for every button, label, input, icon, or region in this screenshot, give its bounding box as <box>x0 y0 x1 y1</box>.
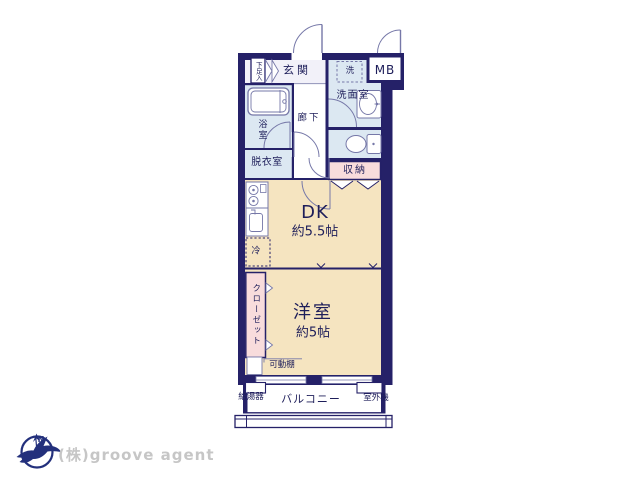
dressing-room-label: 脱衣室 <box>251 158 283 168</box>
meter-box-label: MB <box>375 64 396 76</box>
meter-box-door-arc <box>378 30 401 53</box>
closet-label: クローゼット <box>251 284 260 347</box>
entrance-label: 玄関 <box>283 64 311 75</box>
western-room-label: 洋室 <box>293 304 333 322</box>
stove-icon <box>246 182 268 208</box>
bathroom-label: 浴室 <box>257 119 266 141</box>
water-heater-label: 給湯器 <box>238 393 264 402</box>
movable-shelf-label: 可動棚 <box>269 361 295 370</box>
refrigerator-label: 冷 <box>251 248 260 257</box>
kitchen-sink-icon <box>246 208 268 236</box>
balcony-railing <box>235 416 392 428</box>
dk-label: DK <box>301 204 329 222</box>
floorplan-drawing <box>0 0 640 480</box>
company-name: (株)groove agent <box>58 444 215 465</box>
storage-label: 収納 <box>343 166 367 176</box>
outdoor-unit-label: 室外機 <box>363 393 389 402</box>
floorplan-page: 下足入 玄関 洗 MB 洗面室 浴室 廊下 脱衣室 収納 DK 約5.5帖 冷 … <box>0 0 640 480</box>
compass-north-label: N <box>38 436 45 444</box>
washroom-label: 洗面室 <box>337 91 370 101</box>
shoe-cabinet-label: 下足入 <box>255 61 262 81</box>
entrance-door-arc <box>294 25 323 54</box>
hallway-label: 廊下 <box>297 113 320 123</box>
bathtub-icon <box>248 88 289 115</box>
washer-label: 洗 <box>346 67 355 76</box>
dk-size-label: 約5.5帖 <box>292 225 339 238</box>
western-room-size-label: 約5帖 <box>296 326 330 339</box>
balcony-label: バルコニー <box>281 394 341 405</box>
